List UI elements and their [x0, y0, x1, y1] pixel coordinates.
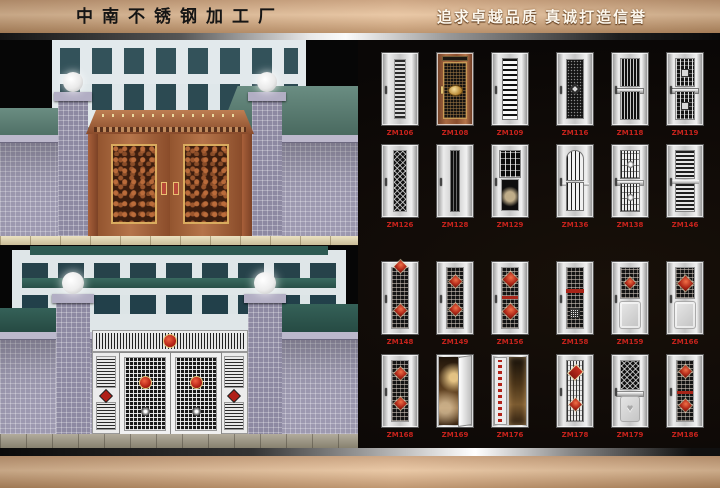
- gate-pillar-left: [58, 100, 88, 236]
- metal-divider-bottom: [0, 448, 720, 456]
- door-photo: [611, 52, 649, 126]
- door-item: ZM149: [436, 261, 474, 346]
- gate-cornice: [86, 110, 254, 134]
- door-item: ZM179: [611, 354, 649, 439]
- door-model-label: ZM128: [436, 221, 474, 229]
- door-model-label: ZM176: [491, 431, 529, 439]
- door-item: ZM148: [381, 261, 419, 346]
- door-item: ZM156: [491, 261, 529, 346]
- copper-door-leaf-left: [98, 134, 170, 236]
- door-model-label: ZM109: [491, 129, 529, 137]
- door-model-label: ZM126: [381, 221, 419, 229]
- door-model-label: ZM136: [556, 221, 594, 229]
- gate-side-panel-left: [92, 352, 120, 434]
- door-photo: [436, 354, 474, 428]
- gate-pillar-right: [252, 100, 282, 236]
- door-photo: [556, 52, 594, 126]
- copper-door-leaf-right: [170, 134, 242, 236]
- door-item: ZM118: [611, 52, 649, 137]
- door-photo: [381, 144, 419, 218]
- paved-ground: [0, 434, 358, 448]
- door-item: ZM158: [556, 261, 594, 346]
- door-model-label: ZM179: [611, 431, 649, 439]
- door-photo: [611, 261, 649, 335]
- red-diamond-icon: [228, 390, 239, 401]
- rosette-icon: [192, 407, 201, 416]
- pillar-cap-left: [54, 92, 92, 101]
- stainless-door-leaf-left: [119, 352, 171, 436]
- roof-top-slab: [30, 246, 328, 255]
- door-item: ZM109: [491, 52, 529, 137]
- door-model-label: ZM158: [556, 338, 594, 346]
- factory-title: 中南不锈钢加工厂: [0, 0, 360, 33]
- door-item: ZM126: [381, 144, 419, 229]
- pillar-cap-left: [52, 294, 94, 303]
- door-model-label: ZM118: [611, 129, 649, 137]
- gate-side-panel-right: [220, 352, 248, 434]
- door-item: ZM108: [436, 52, 474, 137]
- pillar-cap-right: [244, 294, 286, 303]
- door-photo: [491, 354, 529, 428]
- door-item: ZM146: [666, 144, 704, 229]
- gate-post-left: [88, 134, 98, 236]
- door-photo: [611, 354, 649, 428]
- globe-lamp-left: [63, 72, 83, 92]
- door-item: ZM119: [666, 52, 704, 137]
- door-photo: [436, 261, 474, 335]
- door-photo: [666, 261, 704, 335]
- showcase-photo-stainless-gate: [0, 246, 358, 448]
- door-item: ZM159: [611, 261, 649, 346]
- metal-divider-top: [0, 33, 720, 40]
- door-item: ZM169: [436, 354, 474, 439]
- door-item: ZM168: [381, 354, 419, 439]
- door-photo: [381, 261, 419, 335]
- carved-panel: [111, 144, 157, 224]
- gate-pillar-left: [56, 302, 90, 434]
- door-photo: [666, 144, 704, 218]
- door-model-label: ZM148: [381, 338, 419, 346]
- showcase-photo-copper-gate: [0, 40, 358, 245]
- door-model-label: ZM168: [381, 431, 419, 439]
- stainless-door-leaf-right: [170, 352, 222, 436]
- red-medallion-icon: [140, 377, 151, 388]
- door-model-label: ZM186: [666, 431, 704, 439]
- door-item: ZM178: [556, 354, 594, 439]
- door-model-label: ZM159: [611, 338, 649, 346]
- door-photo: [381, 354, 419, 428]
- globe-lamp-left: [62, 272, 84, 294]
- globe-lamp-right: [257, 72, 277, 92]
- door-model-label: ZM129: [491, 221, 529, 229]
- rosette-icon: [141, 407, 150, 416]
- door-model-label: ZM119: [666, 129, 704, 137]
- door-item: ZM116: [556, 52, 594, 137]
- header-band: 中南不锈钢加工厂 追求卓越品质 真诚打造信誉: [0, 0, 720, 33]
- door-item: ZM136: [556, 144, 594, 229]
- door-item: ZM186: [666, 354, 704, 439]
- door-item: ZM176: [491, 354, 529, 439]
- door-item: ZM138: [611, 144, 649, 229]
- door-photo: [491, 261, 529, 335]
- paved-ground: [0, 236, 358, 245]
- red-diamond-icon: [100, 390, 111, 401]
- door-item: ZM166: [666, 261, 704, 346]
- footer-band: 电话：0377-63382058传真：0377-63382158 百度搜索：南阳…: [0, 456, 720, 488]
- door-grid: ZM106ZM108ZM109ZM116ZM118ZM119ZM126ZM128…: [381, 52, 708, 446]
- door-model-label: ZM149: [436, 338, 474, 346]
- door-model-label: ZM108: [436, 129, 474, 137]
- carved-panel: [183, 144, 229, 224]
- door-photo: [666, 52, 704, 126]
- door-model-label: ZM156: [491, 338, 529, 346]
- pillar-cap-right: [248, 92, 286, 101]
- door-photo: [611, 144, 649, 218]
- door-model-label: ZM146: [666, 221, 704, 229]
- door-photo: [491, 52, 529, 126]
- door-photo: [556, 261, 594, 335]
- door-model-label: ZM169: [436, 431, 474, 439]
- red-medallion-icon: [164, 335, 176, 347]
- door-model-label: ZM116: [556, 129, 594, 137]
- door-model-label: ZM106: [381, 129, 419, 137]
- catalog-poster: 中南不锈钢加工厂 追求卓越品质 真诚打造信誉: [0, 0, 720, 488]
- door-photo: [556, 144, 594, 218]
- gate-transom-grille: [92, 330, 248, 352]
- gate-post-right: [242, 134, 252, 236]
- door-item: ZM129: [491, 144, 529, 229]
- globe-lamp-right: [254, 272, 276, 294]
- door-photo: [666, 354, 704, 428]
- door-photo: [436, 52, 474, 126]
- door-model-label: ZM166: [666, 338, 704, 346]
- door-photo: [436, 144, 474, 218]
- door-model-label: ZM138: [611, 221, 649, 229]
- door-photo: [381, 52, 419, 126]
- door-item: ZM128: [436, 144, 474, 229]
- red-medallion-icon: [191, 377, 202, 388]
- door-model-label: ZM178: [556, 431, 594, 439]
- content-area: ZM106ZM108ZM109ZM116ZM118ZM119ZM126ZM128…: [0, 40, 720, 448]
- door-item: ZM106: [381, 52, 419, 137]
- door-photo: [556, 354, 594, 428]
- door-photo: [491, 144, 529, 218]
- slogan-text: 追求卓越品质 真诚打造信誉: [382, 0, 702, 33]
- gate-pillar-right: [248, 302, 282, 434]
